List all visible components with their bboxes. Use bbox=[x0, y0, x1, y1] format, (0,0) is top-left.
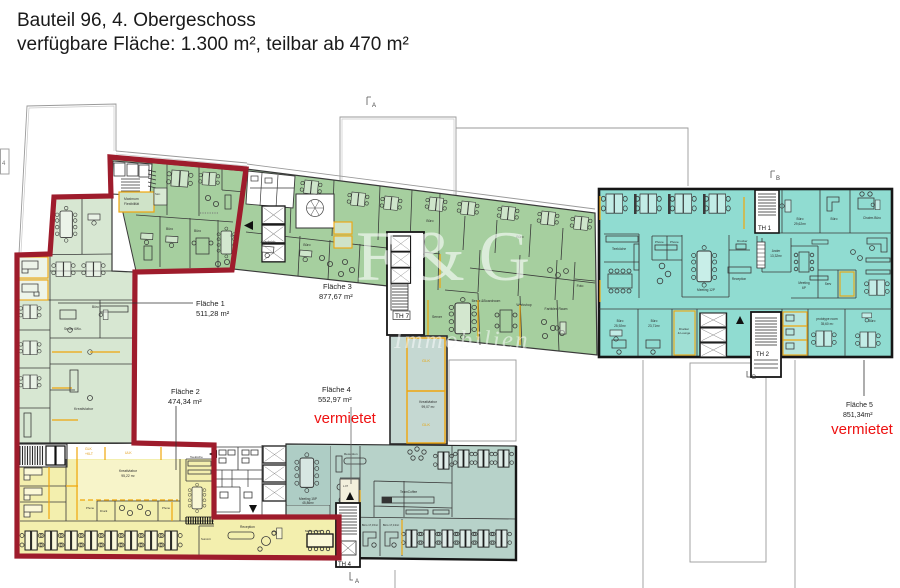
svg-text:ULK: ULK bbox=[125, 451, 132, 455]
svg-text:Reception: Reception bbox=[240, 525, 255, 529]
svg-text:Flexibilität: Flexibilität bbox=[124, 202, 139, 206]
svg-text:877,67 m²: 877,67 m² bbox=[319, 292, 353, 301]
svg-text:Büro: Büro bbox=[92, 305, 99, 309]
svg-text:Maximum: Maximum bbox=[124, 197, 139, 201]
svg-text:GLK: GLK bbox=[422, 358, 430, 363]
svg-text:Büro: Büro bbox=[797, 217, 804, 221]
svg-text:TH 7: TH 7 bbox=[395, 313, 409, 320]
svg-text:Büro 17,15m²: Büro 17,15m² bbox=[362, 523, 378, 527]
svg-text:& Lounge: & Lounge bbox=[678, 331, 691, 335]
svg-text:13,32m²: 13,32m² bbox=[770, 254, 782, 258]
svg-text:Stor.: Stor. bbox=[155, 192, 161, 196]
svg-text:Ausgleich: Ausgleich bbox=[261, 240, 276, 244]
svg-text:A: A bbox=[355, 579, 359, 585]
svg-text:TH 1: TH 1 bbox=[758, 226, 772, 232]
svg-text:Fläche 2: Fläche 2 bbox=[171, 387, 200, 396]
svg-text:Phone: Phone bbox=[86, 506, 95, 510]
svg-text:Chairm.Büro: Chairm.Büro bbox=[863, 216, 881, 220]
svg-text:GLK: GLK bbox=[85, 447, 93, 451]
svg-text:Bespr.&Boardroom: Bespr.&Boardroom bbox=[472, 299, 501, 303]
svg-text:Büro 17,13m²: Büro 17,13m² bbox=[383, 523, 399, 527]
svg-text:TH 4: TH 4 bbox=[338, 562, 352, 568]
svg-text:Ander: Ander bbox=[772, 249, 781, 253]
svg-text:Kreativlabor: Kreativlabor bbox=[419, 400, 437, 404]
svg-text:Büro: Büro bbox=[869, 319, 876, 323]
svg-text:Druck: Druck bbox=[100, 509, 108, 513]
svg-text:B: B bbox=[776, 176, 780, 182]
svg-text:Fläche 3: Fläche 3 bbox=[323, 282, 352, 291]
svg-text:851,34m²: 851,34m² bbox=[843, 412, 873, 419]
svg-text:TH 2: TH 2 bbox=[756, 352, 770, 358]
svg-text:511,28 m²: 511,28 m² bbox=[196, 309, 230, 318]
svg-text:GLK: GLK bbox=[422, 422, 430, 427]
svg-text:23,71m²: 23,71m² bbox=[648, 324, 660, 328]
svg-text:Reception: Reception bbox=[732, 277, 747, 281]
svg-text:L.07: L.07 bbox=[343, 484, 349, 488]
svg-text:Büro: Büro bbox=[166, 227, 173, 231]
svg-text:Büro: Büro bbox=[617, 319, 624, 323]
svg-text:474,34 m²: 474,34 m² bbox=[168, 397, 202, 406]
svg-text:Fläche 1: Fläche 1 bbox=[196, 299, 225, 308]
svg-text:29,62m²: 29,62m² bbox=[794, 222, 807, 226]
svg-text:Fläche 4: Fläche 4 bbox=[322, 385, 351, 394]
svg-text:Teeküche: Teeküche bbox=[612, 247, 626, 251]
svg-text:vermietet: vermietet bbox=[831, 421, 894, 438]
svg-text:Teeküche: Teeküche bbox=[190, 455, 203, 459]
svg-text:+KLT: +KLT bbox=[85, 452, 93, 456]
svg-text:Summit: Summit bbox=[201, 537, 211, 541]
svg-text:Phone: Phone bbox=[670, 240, 679, 244]
svg-text:Büro: Büro bbox=[303, 243, 310, 247]
svg-text:Farbklex Raum: Farbklex Raum bbox=[545, 307, 568, 311]
svg-text:Server 6Wo.: Server 6Wo. bbox=[64, 327, 82, 331]
svg-text:Kreativlabor: Kreativlabor bbox=[119, 469, 138, 473]
svg-text:6P: 6P bbox=[802, 286, 806, 290]
svg-text:Serv: Serv bbox=[825, 282, 832, 286]
svg-text:Büro: Büro bbox=[831, 217, 838, 221]
svg-text:Büro: Büro bbox=[194, 229, 201, 233]
svg-text:F&G: F&G bbox=[356, 218, 544, 296]
svg-text:35,60 m²: 35,60 m² bbox=[821, 322, 834, 326]
svg-text:Drucker: Drucker bbox=[737, 239, 748, 243]
svg-text:Phone: Phone bbox=[162, 506, 171, 510]
svg-text:Meeting 10P: Meeting 10P bbox=[305, 529, 321, 533]
svg-text:Workshop: Workshop bbox=[516, 303, 531, 307]
svg-text:99,07 m²: 99,07 m² bbox=[421, 405, 435, 409]
svg-text:Meeting: Meeting bbox=[798, 281, 810, 285]
svg-text:Foto: Foto bbox=[577, 284, 584, 288]
svg-text:vermietet: vermietet bbox=[314, 410, 377, 427]
svg-text:45,86m²: 45,86m² bbox=[302, 501, 314, 505]
svg-text:Meeting 12P: Meeting 12P bbox=[697, 288, 715, 292]
svg-text:B: B bbox=[752, 375, 756, 381]
svg-text:Phone: Phone bbox=[655, 240, 664, 244]
svg-text:25,92m²: 25,92m² bbox=[614, 324, 626, 328]
svg-text:Server: Server bbox=[432, 315, 443, 319]
svg-text:Büro: Büro bbox=[651, 319, 658, 323]
svg-text:95,22 m²: 95,22 m² bbox=[121, 474, 135, 478]
svg-text:TeamCoffee: TeamCoffee bbox=[400, 490, 417, 494]
svg-text:Fläche 5: Fläche 5 bbox=[846, 402, 873, 409]
svg-text:552,97 m²: 552,97 m² bbox=[318, 395, 352, 404]
svg-text:Immobilien: Immobilien bbox=[393, 327, 530, 354]
svg-text:prototype room: prototype room bbox=[816, 317, 838, 321]
svg-text:Kreativlabor: Kreativlabor bbox=[74, 407, 94, 411]
svg-text:A: A bbox=[372, 103, 376, 109]
